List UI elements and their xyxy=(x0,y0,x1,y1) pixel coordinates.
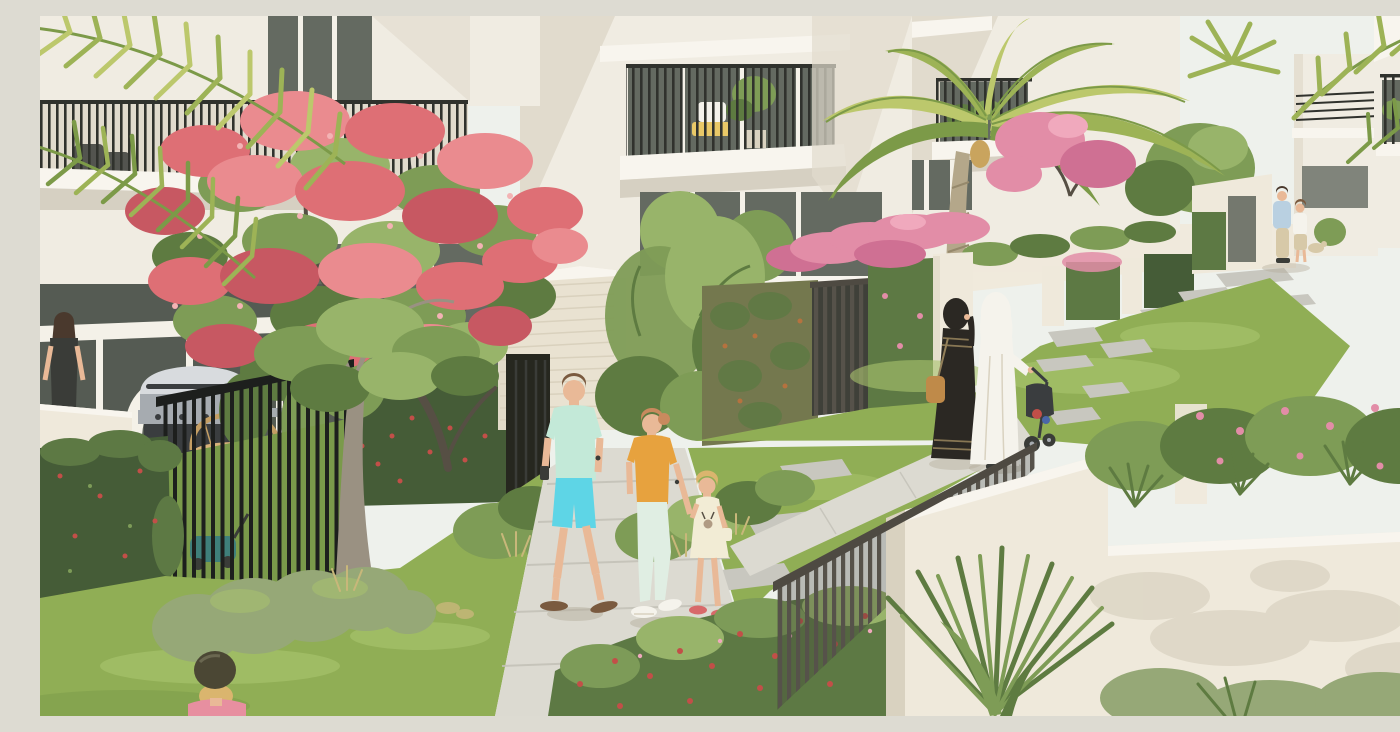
carried-toy xyxy=(721,528,732,541)
flip-flop xyxy=(540,601,568,611)
garden-pillar xyxy=(1042,266,1064,326)
community-render: Townhouse community garden walk xyxy=(40,16,1400,716)
shoulder-bag xyxy=(926,376,945,403)
bronze-slat-gate xyxy=(810,278,870,416)
bunny-graphic xyxy=(704,520,713,529)
red-shoe xyxy=(689,606,707,615)
hijab xyxy=(943,298,969,330)
phone-in-hand xyxy=(540,466,549,480)
window-upper-left xyxy=(268,16,372,102)
orange-tshirt xyxy=(634,435,670,507)
sneaker xyxy=(631,606,657,618)
balcony-railing-center xyxy=(626,66,836,160)
scene-canvas: Townhouse community garden walk xyxy=(40,16,1400,716)
